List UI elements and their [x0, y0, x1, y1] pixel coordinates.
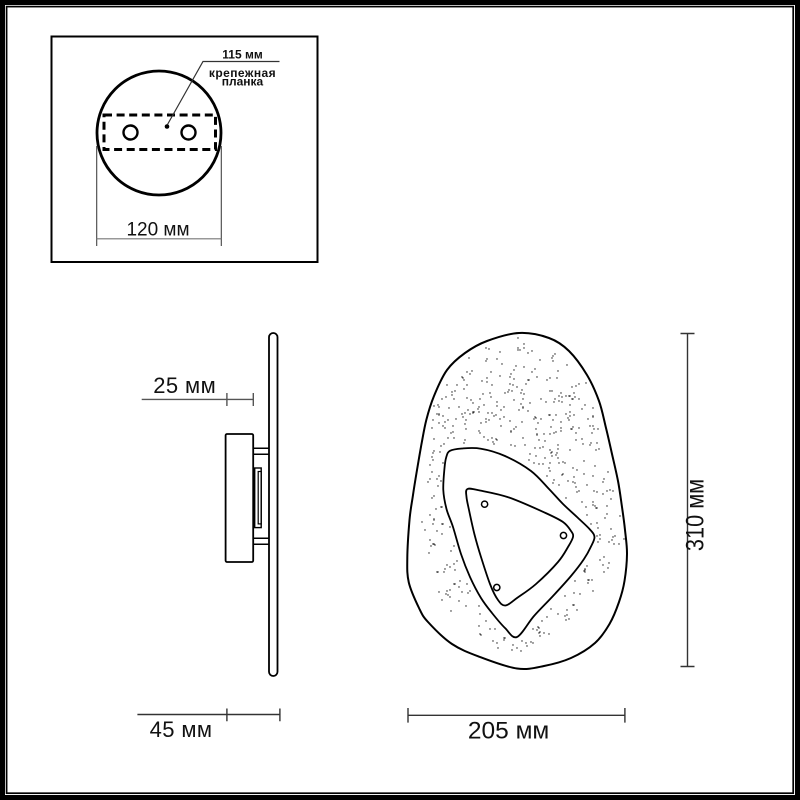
- svg-text:45 мм: 45 мм: [150, 717, 213, 742]
- svg-text:310 мм: 310 мм: [681, 479, 709, 551]
- svg-text:25 мм: 25 мм: [153, 373, 216, 398]
- svg-text:планка: планка: [222, 75, 264, 89]
- svg-text:120 мм: 120 мм: [126, 220, 189, 241]
- svg-text:205 мм: 205 мм: [468, 718, 549, 745]
- svg-text:115 мм: 115 мм: [222, 48, 263, 62]
